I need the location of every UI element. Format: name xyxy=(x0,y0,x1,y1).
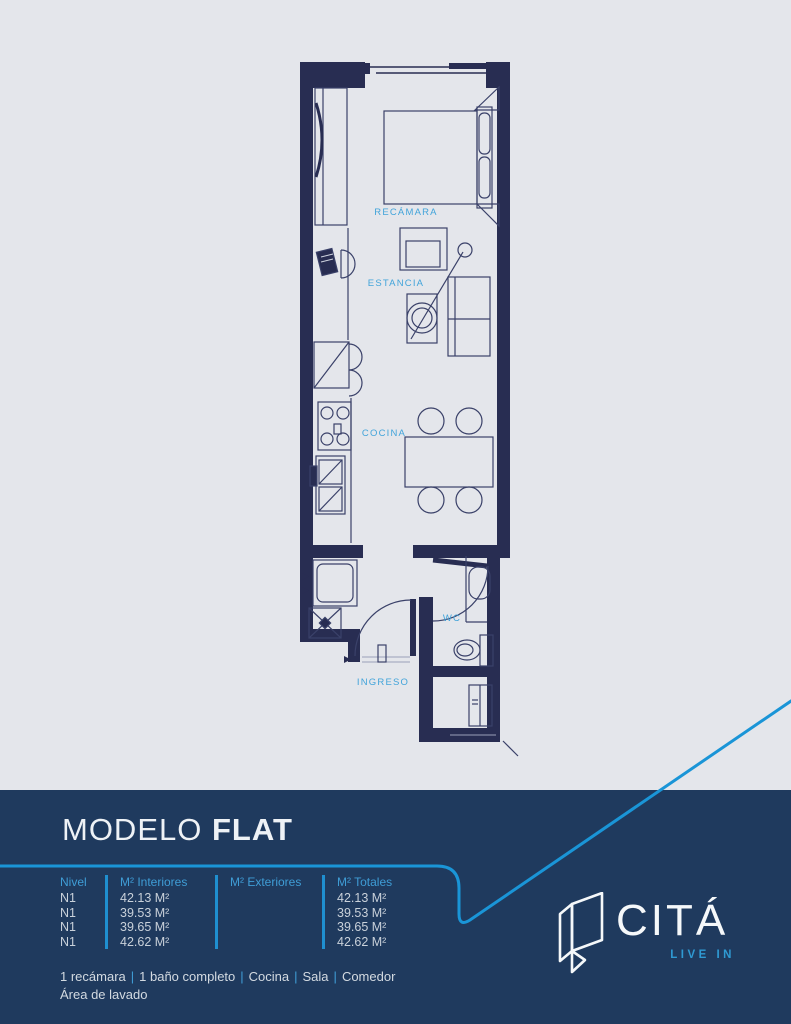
bed xyxy=(384,87,499,226)
washer xyxy=(313,560,357,606)
entry-door xyxy=(344,600,411,663)
window xyxy=(365,67,487,73)
closet-shelf xyxy=(450,685,518,756)
fridge xyxy=(314,342,362,396)
wardrobe xyxy=(315,88,347,225)
desk-chair xyxy=(316,228,355,340)
room-label-ingreso: INGRESO xyxy=(357,677,409,688)
flyer-page: RECÁMARA ESTANCIA COCINA WC INGRESO MODE… xyxy=(0,0,791,1024)
wc-door xyxy=(433,566,488,621)
coffee-table xyxy=(407,294,437,343)
bathroom-sink xyxy=(469,567,490,599)
furniture xyxy=(302,87,518,756)
laundry-sink xyxy=(302,573,341,638)
room-labels: RECÁMARA ESTANCIA COCINA WC INGRESO xyxy=(357,207,461,688)
room-label-cocina: COCINA xyxy=(362,428,406,439)
walls xyxy=(300,62,510,742)
tv-unit xyxy=(400,228,447,270)
bathroom-counter xyxy=(466,556,487,622)
dining-chairs xyxy=(418,408,482,513)
stove xyxy=(318,402,351,450)
dining-table xyxy=(405,437,493,487)
info-panel xyxy=(0,790,791,1024)
shower-door xyxy=(433,560,487,566)
floor-lamp xyxy=(411,243,472,339)
kitchen-sink xyxy=(310,456,345,514)
room-label-estancia: ESTANCIA xyxy=(368,278,424,289)
room-label-recamara: RECÁMARA xyxy=(374,207,437,218)
room-label-wc: WC xyxy=(443,613,461,624)
sofa xyxy=(448,277,490,356)
toilet xyxy=(454,635,493,666)
